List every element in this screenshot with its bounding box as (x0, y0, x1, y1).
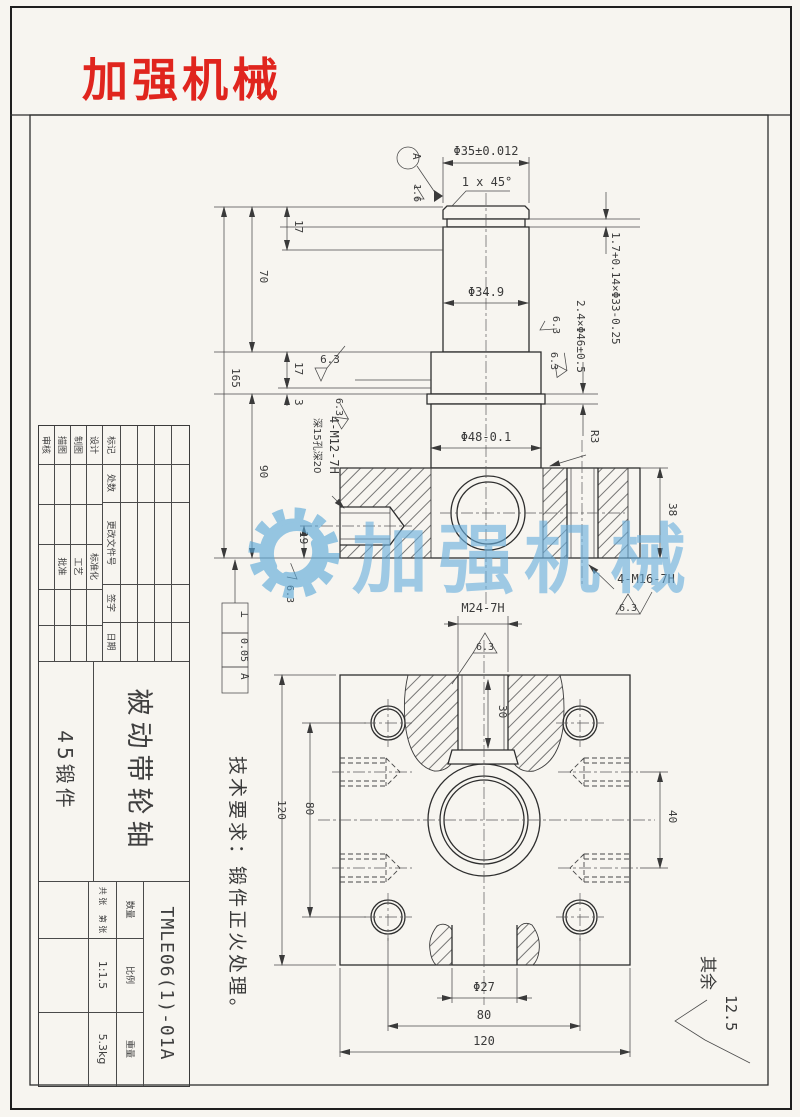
dim-d349: Φ34.9 (468, 285, 504, 299)
weight-value: 5.3kg (89, 1012, 117, 1086)
dim-80-left: 80 (303, 802, 316, 815)
dim-collar: 2.4×Φ46±0.5 (574, 300, 587, 373)
tol-value: 0.05 (238, 638, 249, 662)
datum-a-label: A (410, 153, 423, 160)
dim-17b: 17 (292, 362, 305, 375)
tol-symbol: ⊥ (238, 611, 251, 618)
finish-6-3: 6.3 (550, 316, 561, 334)
default-roughness: 其余 12.5 (675, 956, 750, 1063)
drawing-sheet: 加强机械 (0, 0, 800, 1117)
dim-d27: Φ27 (473, 980, 495, 994)
dim-38: 38 (666, 503, 679, 516)
finish-6-3: 6.3 (476, 642, 494, 653)
dim-165: 165 (229, 368, 242, 388)
approval-approve: 批准 (55, 544, 71, 589)
lower-view-dimensions: M24-7H 6.3 30 120 80 40 Φ27 (274, 601, 679, 1057)
part-name: 被动带轮轴 (94, 661, 189, 881)
finish-6-3: 6.3 (619, 603, 637, 614)
tol-datum: A (238, 673, 251, 680)
finish-6-3: 6.3 (284, 585, 295, 603)
finish-6-3: 6.3 (320, 353, 340, 366)
sheet-total: 共 张 (89, 881, 117, 911)
role-design: 设计 (87, 426, 103, 464)
dim-70: 70 (257, 270, 270, 283)
callout-m24: M24-7H (461, 601, 504, 615)
weight-label: 重量 (117, 1012, 144, 1086)
dim-40: 40 (666, 810, 679, 823)
dim-120-bottom: 120 (473, 1034, 495, 1048)
rev-header-sign: 签字 (103, 584, 121, 622)
dim-d35: Φ35±0.012 (453, 144, 518, 158)
rev-header-docno: 更改文件号 (103, 502, 121, 584)
rev-header-date: 日期 (103, 622, 121, 661)
rest-label: 其余 (697, 956, 717, 990)
dim-chamfer: 1 x 45° (462, 175, 513, 189)
role-draft: 制图 (71, 426, 87, 464)
title-block-grid: 标记 处数 更改文件号 签字 日期 设计 制图 描图 审核 标准化 工艺 批准 (38, 425, 190, 1087)
upper-view-shaft-section (300, 193, 640, 606)
role-check: 审核 (39, 426, 55, 464)
dim-90: 90 (257, 465, 270, 478)
dim-30: 30 (496, 705, 509, 718)
dim-d48: Φ48-0.1 (461, 430, 512, 444)
rev-header-count: 处数 (103, 464, 121, 502)
dim-3: 3 (292, 399, 305, 406)
dim-80-bottom: 80 (477, 1008, 491, 1022)
role-trace: 描图 (55, 426, 71, 464)
finish-6-3: 6.3 (333, 398, 344, 416)
dim-120-left: 120 (275, 800, 288, 820)
tech-requirement-note: 技术要求：锻件正火处理。 (226, 756, 248, 1020)
scale-value: 1:1.5 (89, 938, 117, 1012)
dim-groove: 1.7+0.14×Φ33-0.25 (609, 232, 622, 345)
finish-6-3: 6.3 (548, 352, 559, 370)
scale-label: 比例 (117, 938, 144, 1012)
drawing-number: TMLE06(1)-01A (144, 881, 189, 1086)
approval-standard: 标准化 (87, 544, 103, 589)
approval-process: 工艺 (71, 544, 87, 589)
rev-header-mark: 标记 (103, 426, 121, 464)
sheet-number: 第 张 (89, 910, 117, 938)
finish-1-6: 1.6 (411, 184, 422, 202)
lower-view-flange (318, 640, 655, 1005)
callout-m12-depth: 深15孔深20 (311, 418, 323, 473)
qty-label: 数量 (117, 881, 144, 938)
dim-19: 19 (297, 531, 310, 544)
title-block: 标记 处数 更改文件号 签字 日期 设计 制图 描图 审核 标准化 工艺 批准 (40, 425, 190, 1085)
dim-17a: 17 (292, 220, 305, 233)
material-spec: 45锻件 (39, 661, 94, 881)
callout-m16: 4-M16-7H (617, 572, 675, 586)
tolerance-frame: ⊥ 0.05 A (222, 560, 251, 693)
dim-r3: R3 (588, 430, 601, 443)
rest-value: 12.5 (722, 995, 740, 1031)
